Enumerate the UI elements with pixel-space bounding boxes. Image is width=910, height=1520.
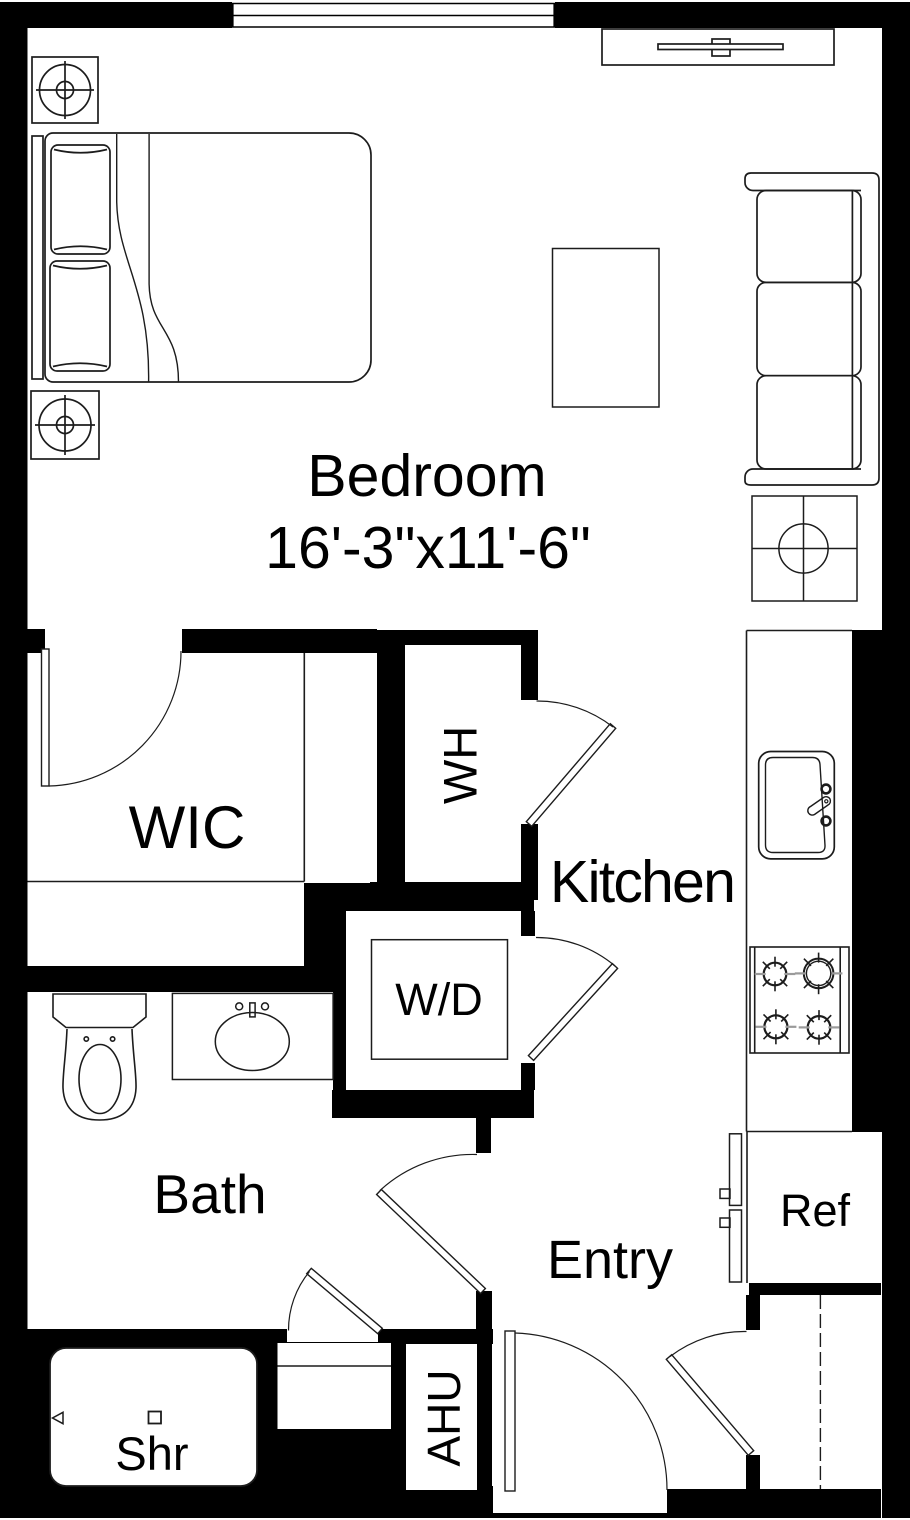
svg-text:Shr: Shr [115,1427,188,1480]
svg-text:Ref: Ref [780,1185,851,1236]
svg-text:Bath: Bath [153,1163,266,1225]
svg-text:Kitchen: Kitchen [550,849,734,915]
svg-text:W/D: W/D [395,974,482,1025]
svg-text:Bedroom: Bedroom [307,443,546,509]
svg-text:WH: WH [434,726,487,804]
svg-text:16'-3"x11'-6": 16'-3"x11'-6" [265,515,591,581]
svg-text:Entry: Entry [547,1230,673,1290]
svg-text:AHU: AHU [418,1369,470,1466]
svg-text:WIC: WIC [129,794,246,861]
